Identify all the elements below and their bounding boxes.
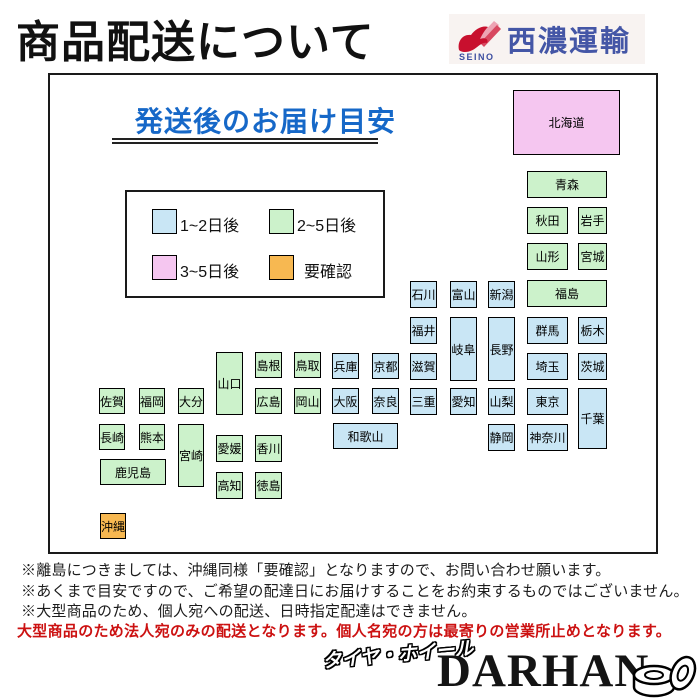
prefecture-box: 群馬: [527, 317, 568, 344]
prefecture-box: 山形: [527, 243, 568, 270]
footer-brand-logo: DARHAN: [437, 648, 649, 695]
prefecture-box: 香川: [255, 435, 282, 462]
prefecture-box: 宮城: [578, 243, 607, 270]
prefecture-box: 島根: [255, 352, 282, 378]
prefecture-box: 和歌山: [333, 423, 398, 449]
prefecture-box: 福井: [410, 317, 437, 344]
prefecture-box: 宮崎: [178, 424, 204, 487]
prefecture-box: 広島: [255, 388, 282, 414]
prefecture-box: 北海道: [513, 90, 620, 155]
prefecture-box: 愛知: [450, 388, 477, 415]
prefecture-box: 兵庫: [332, 353, 359, 379]
prefecture-box: 東京: [527, 388, 568, 415]
prefecture-box: 神奈川: [527, 424, 568, 451]
prefecture-box: 埼玉: [527, 353, 568, 380]
prefecture-box: 奈良: [372, 388, 399, 414]
prefecture-box: 三重: [410, 388, 437, 415]
prefecture-box: 熊本: [139, 424, 165, 450]
prefecture-box: 山口: [216, 352, 243, 415]
prefecture-box: 鳥取: [294, 352, 321, 378]
prefecture-box: 栃木: [578, 317, 607, 344]
prefecture-box: 大分: [178, 388, 204, 414]
prefecture-box: 京都: [372, 353, 399, 379]
prefecture-box: 徳島: [255, 472, 282, 499]
prefecture-box: 鹿児島: [100, 459, 166, 485]
note-line: ※あくまで目安ですので、ご希望の配達日にお届けすることをお約束するものではござい…: [21, 580, 689, 601]
prefecture-box: 高知: [216, 472, 243, 499]
prefecture-box: 愛媛: [216, 435, 243, 462]
tire-stack-icon: [630, 647, 698, 700]
prefecture-box: 長野: [488, 317, 515, 381]
prefecture-box: 石川: [410, 281, 437, 308]
prefecture-box: 滋賀: [410, 353, 437, 380]
prefecture-box: 茨城: [578, 353, 607, 380]
prefecture-box: 佐賀: [99, 388, 125, 414]
warning-line: 大型商品のため法人宛のみの配送となります。個人名宛の方は最寄りの営業所止めとなり…: [17, 620, 671, 641]
prefecture-box: 静岡: [488, 424, 515, 451]
prefecture-box: 岡山: [294, 388, 321, 414]
page: 商品配送について SEINO 西濃運輸 発送後のお届け目安 1~2日後 2~5日…: [0, 0, 700, 700]
note-line: ※大型商品のため、個人宛への配送、日時指定配達はできません。: [21, 600, 477, 621]
prefecture-box: 千葉: [578, 388, 607, 449]
note-line: ※離島につきましては、沖縄同様「要確認」となりますので、お問い合わせ願います。: [21, 559, 611, 580]
prefecture-box: 大阪: [332, 388, 359, 414]
prefecture-box: 岐阜: [450, 317, 477, 381]
prefecture-box: 福岡: [139, 388, 165, 414]
prefecture-box: 福島: [527, 280, 607, 307]
prefecture-box: 富山: [450, 281, 477, 308]
prefecture-box: 新潟: [488, 281, 515, 308]
prefecture-box: 秋田: [527, 207, 568, 234]
prefecture-box: 長崎: [99, 424, 125, 450]
prefecture-box: 山梨: [488, 388, 515, 415]
prefecture-box: 沖縄: [100, 513, 126, 539]
prefecture-box: 青森: [527, 171, 607, 198]
prefecture-box: 岩手: [578, 207, 607, 234]
